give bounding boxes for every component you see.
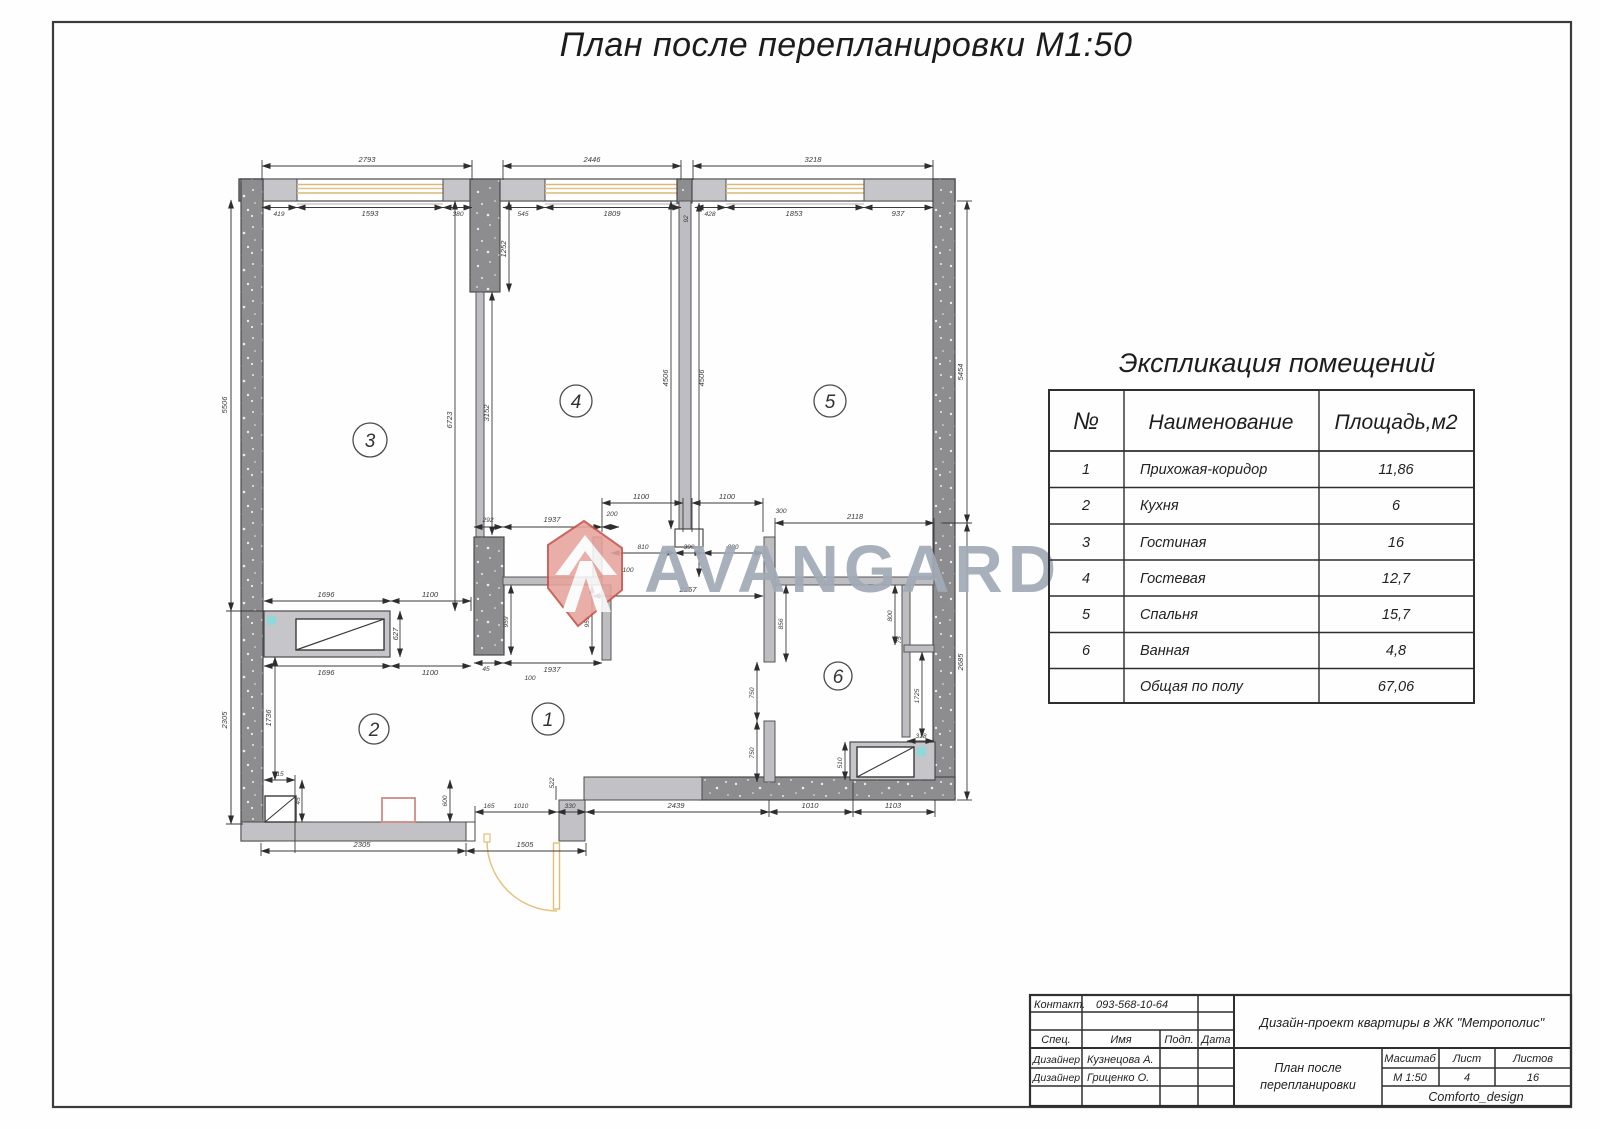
svg-text:Ванная: Ванная: [1140, 643, 1190, 659]
svg-text:AVANGARD: AVANGARD: [644, 532, 1061, 607]
svg-text:1736: 1736: [264, 709, 273, 727]
svg-text:200: 200: [605, 511, 617, 518]
svg-text:6: 6: [1392, 498, 1401, 514]
svg-text:12,7: 12,7: [1382, 571, 1411, 587]
svg-text:937: 937: [892, 209, 905, 218]
svg-text:1696: 1696: [318, 590, 336, 599]
svg-text:800: 800: [887, 610, 894, 621]
svg-text:1100: 1100: [719, 492, 736, 501]
svg-text:4: 4: [571, 392, 582, 413]
svg-text:75: 75: [896, 636, 903, 644]
svg-text:300: 300: [775, 508, 786, 515]
svg-text:2: 2: [1081, 498, 1090, 514]
svg-text:Дизайнер: Дизайнер: [1032, 1072, 1080, 1084]
svg-text:292: 292: [481, 517, 493, 524]
svg-text:6723: 6723: [445, 411, 454, 429]
svg-text:1: 1: [543, 710, 554, 731]
svg-text:16: 16: [1388, 535, 1405, 551]
svg-text:Прихожая-коридор: Прихожая-коридор: [1140, 462, 1267, 478]
svg-text:4506: 4506: [661, 369, 670, 387]
svg-text:5454: 5454: [956, 364, 965, 381]
svg-text:2305: 2305: [220, 711, 229, 730]
svg-text:Дизайн-проект квартиры в ЖК "М: Дизайн-проект квартиры в ЖК "Метрополис": [1258, 1015, 1546, 1030]
svg-text:Comforto_design: Comforto_design: [1428, 1090, 1523, 1104]
svg-text:Общая по полу: Общая по полу: [1140, 679, 1244, 695]
svg-text:1010: 1010: [514, 803, 529, 810]
svg-text:4506: 4506: [697, 369, 706, 387]
svg-text:522: 522: [549, 777, 556, 788]
svg-text:1725: 1725: [914, 688, 921, 703]
svg-text:600: 600: [442, 795, 449, 806]
svg-text:67,06: 67,06: [1378, 679, 1415, 695]
svg-text:Площадь,м2: Площадь,м2: [1334, 411, 1457, 434]
svg-text:093-568-10-64: 093-568-10-64: [1096, 999, 1168, 1011]
svg-text:4: 4: [1464, 1072, 1470, 1084]
svg-text:1593: 1593: [362, 209, 380, 218]
svg-text:1103: 1103: [885, 801, 902, 810]
svg-text:4: 4: [1082, 571, 1090, 587]
svg-text:3: 3: [365, 431, 376, 452]
svg-text:5: 5: [825, 392, 836, 413]
svg-text:100: 100: [524, 675, 535, 682]
svg-text:6: 6: [1082, 643, 1091, 659]
svg-text:45: 45: [295, 797, 302, 805]
svg-text:1937: 1937: [544, 665, 562, 674]
svg-text:419: 419: [273, 211, 284, 218]
svg-text:1809: 1809: [604, 209, 622, 218]
svg-text:428: 428: [704, 211, 715, 218]
svg-text:3: 3: [1082, 535, 1090, 551]
svg-text:100: 100: [622, 567, 633, 574]
svg-text:330: 330: [564, 803, 575, 810]
svg-text:1100: 1100: [633, 492, 650, 501]
svg-text:№: №: [1073, 408, 1099, 435]
svg-text:2305: 2305: [353, 840, 372, 849]
svg-text:3218: 3218: [805, 155, 823, 164]
svg-text:Контакт.: Контакт.: [1034, 999, 1085, 1011]
svg-text:Лист: Лист: [1452, 1053, 1481, 1065]
svg-text:Дизайнер: Дизайнер: [1032, 1054, 1080, 1066]
svg-text:11,86: 11,86: [1378, 462, 1414, 478]
svg-text:2118: 2118: [846, 512, 864, 521]
svg-text:5506: 5506: [220, 396, 229, 414]
svg-text:6: 6: [833, 667, 844, 688]
svg-text:Гостевая: Гостевая: [1140, 571, 1206, 587]
svg-text:959: 959: [503, 616, 510, 627]
svg-text:Кузнецова А.: Кузнецова А.: [1087, 1054, 1154, 1066]
svg-text:750: 750: [749, 687, 756, 698]
svg-text:318: 318: [915, 733, 926, 740]
svg-text:5: 5: [1082, 607, 1091, 623]
svg-text:перепланировки: перепланировки: [1260, 1078, 1356, 1092]
svg-text:Гостиная: Гостиная: [1140, 535, 1207, 551]
svg-text:1010: 1010: [802, 801, 820, 810]
svg-text:545: 545: [517, 211, 528, 218]
svg-text:750: 750: [749, 747, 756, 758]
svg-text:45: 45: [482, 666, 490, 673]
svg-text:Дата: Дата: [1199, 1034, 1230, 1046]
svg-text:380: 380: [452, 211, 463, 218]
svg-text:2: 2: [368, 720, 380, 741]
svg-text:Наименование: Наименование: [1149, 411, 1294, 434]
svg-text:Листов: Листов: [1512, 1053, 1553, 1065]
svg-text:Спальня: Спальня: [1140, 607, 1198, 623]
svg-text:Имя: Имя: [1110, 1034, 1131, 1046]
svg-text:Кухня: Кухня: [1140, 498, 1179, 514]
svg-text:1100: 1100: [422, 668, 439, 677]
svg-text:2439: 2439: [667, 801, 686, 810]
svg-text:М 1:50: М 1:50: [1393, 1072, 1428, 1084]
svg-text:856: 856: [778, 618, 785, 629]
svg-text:Подп.: Подп.: [1164, 1034, 1193, 1046]
svg-text:Экспликация помещений: Экспликация помещений: [1119, 348, 1435, 378]
svg-text:План после: План после: [1274, 1061, 1342, 1075]
svg-text:165: 165: [483, 803, 494, 810]
svg-text:Масштаб: Масштаб: [1384, 1053, 1436, 1065]
svg-text:510: 510: [837, 757, 844, 768]
svg-text:16: 16: [1527, 1072, 1540, 1084]
svg-text:1696: 1696: [318, 668, 336, 677]
svg-text:1937: 1937: [544, 515, 562, 524]
svg-text:1100: 1100: [422, 590, 439, 599]
svg-text:План после перепланировки М1:5: План после перепланировки М1:50: [560, 26, 1133, 64]
svg-text:2685: 2685: [956, 653, 965, 672]
svg-text:15,7: 15,7: [1382, 607, 1411, 623]
svg-text:Гриценко О.: Гриценко О.: [1087, 1072, 1149, 1084]
svg-text:1853: 1853: [786, 209, 804, 218]
svg-text:15: 15: [276, 771, 284, 778]
svg-text:1: 1: [1082, 462, 1090, 478]
svg-text:1252: 1252: [499, 240, 508, 258]
svg-text:627: 627: [391, 627, 400, 640]
svg-text:4,8: 4,8: [1386, 643, 1406, 659]
svg-text:3152: 3152: [482, 404, 491, 422]
svg-text:Спец.: Спец.: [1041, 1034, 1070, 1046]
svg-text:92: 92: [683, 215, 690, 223]
svg-text:2793: 2793: [358, 155, 377, 164]
svg-text:1505: 1505: [517, 840, 535, 849]
svg-text:2446: 2446: [583, 155, 602, 164]
